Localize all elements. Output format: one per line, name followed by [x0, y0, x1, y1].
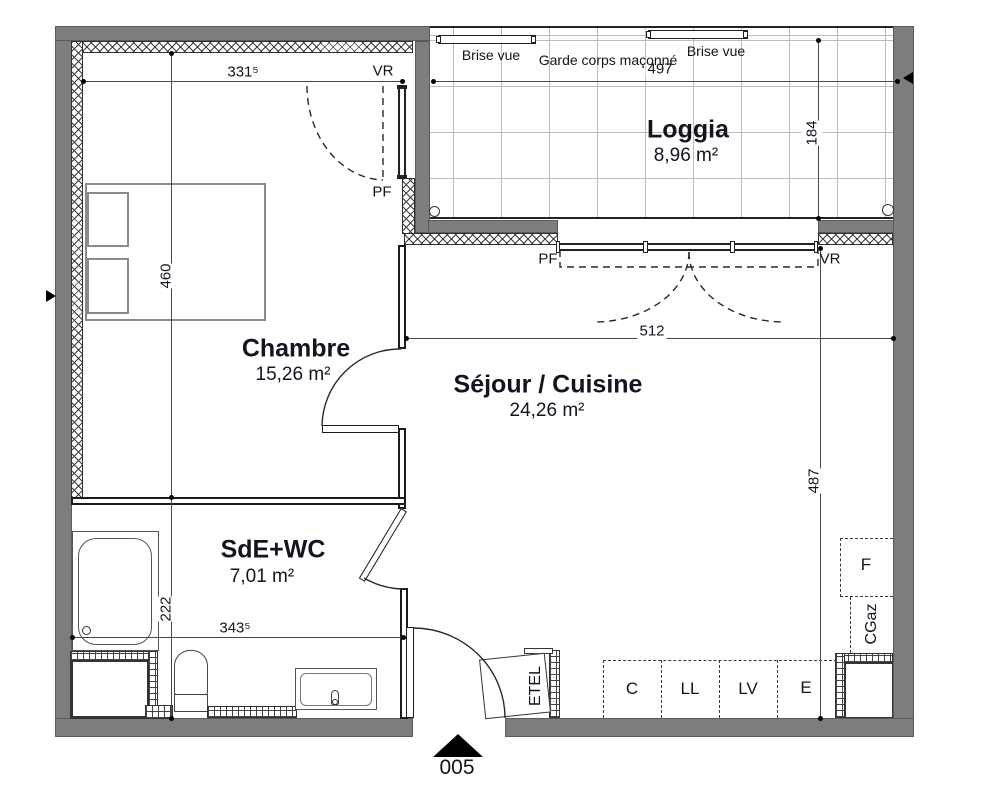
loggia-drain-left	[429, 206, 440, 217]
toilet-tank	[174, 694, 208, 712]
dim-chambre-width: 331⁵	[225, 64, 260, 81]
dim-sde-width: 343⁵	[217, 620, 252, 637]
label-brise-vue-right: Brise vue	[687, 43, 745, 59]
room-area-sde: 7,01 m²	[230, 566, 294, 588]
vanity-faucet-dot	[332, 699, 338, 705]
toilet-bowl	[174, 650, 208, 696]
appliance-label-c: C	[626, 679, 638, 699]
pf-window-chambre-cap-bottom	[397, 175, 407, 179]
insulation-sejour-top-left	[404, 233, 558, 245]
room-area-loggia: 8,96 m²	[654, 145, 718, 167]
brise-vue-panel-left-cap2	[531, 36, 536, 43]
insulation-left-wall	[71, 41, 83, 498]
pf-window-chambre	[398, 88, 406, 176]
label-pf-sejour: PF	[538, 251, 557, 268]
partition-chambre-sejour-upper	[398, 245, 406, 349]
room-area-chambre: 15,26 m²	[256, 364, 331, 386]
bay-window-mullion-1	[643, 241, 648, 253]
room-name-loggia: Loggia	[647, 116, 729, 145]
bottom-wall-left	[55, 718, 413, 737]
brise-vue-panel-right-cap1	[646, 31, 651, 38]
room-area-sejour: 24,26 m²	[510, 400, 585, 422]
duct-inner	[845, 663, 893, 718]
insulation-loggia-pier	[402, 178, 415, 234]
dim-loggia-height: 184	[802, 120, 823, 145]
entrance-marker-icon	[433, 734, 483, 757]
duct-tile-left	[835, 653, 845, 718]
appliance-row-top	[603, 660, 837, 661]
gas-label: CGaz	[863, 604, 881, 645]
dim-line-loggia-width	[433, 81, 897, 82]
room-name-chambre: Chambre	[242, 335, 350, 364]
label-brise-vue-left: Brise vue	[462, 47, 520, 63]
bay-window-swing-right	[689, 252, 784, 322]
sejour-top-wall-right	[818, 220, 894, 233]
label-vr-sejour: VR	[820, 251, 841, 268]
etel-label: ETEL	[527, 666, 545, 706]
label-vr-chambre: VR	[373, 63, 394, 80]
door-swing-sde	[364, 578, 404, 589]
appliance-label-e: E	[800, 678, 811, 698]
pf-window-chambre-cap-top	[397, 85, 407, 89]
partition-chambre-sde	[71, 497, 406, 505]
floor-plan: ETEL C LL LV E F CGaz 331⁵	[0, 0, 998, 800]
loggia-bottom-edge	[430, 217, 893, 219]
bay-window-swing-left	[594, 252, 689, 322]
appliance-label-lv: LV	[738, 679, 758, 699]
pillow-bottom	[87, 258, 129, 314]
brise-vue-panel-left	[438, 35, 536, 44]
label-pf-chambre: PF	[372, 184, 391, 201]
dim-chambre-height: 460	[156, 263, 177, 288]
brise-vue-panel-right-cap2	[743, 31, 748, 38]
bay-window	[558, 243, 818, 251]
tile-ledge-right	[207, 706, 297, 718]
brise-vue-panel-left-cap1	[436, 36, 441, 43]
pillow-top	[87, 192, 129, 247]
room-name-sejour: Séjour / Cuisine	[454, 371, 643, 400]
brise-vue-panel-right	[648, 30, 748, 39]
top-exterior-wall	[55, 26, 430, 41]
left-exterior-wall	[55, 26, 72, 737]
dim-sejour-width: 512	[637, 323, 666, 340]
bottom-wall-right	[505, 718, 914, 737]
loggia-drain-right	[882, 204, 894, 216]
appliance-sep-2	[661, 660, 662, 718]
shower-tray	[72, 661, 148, 717]
door-leaf-entry	[406, 627, 414, 718]
bay-window-shutter-box	[560, 250, 818, 267]
unit-number: 005	[439, 756, 474, 780]
etel-duct-strip	[549, 650, 560, 718]
appliance-label-ll: LL	[681, 679, 700, 699]
bathtub-drain	[82, 626, 91, 635]
dim-sejour-height: 487	[804, 468, 825, 493]
dim-line-sde-width	[72, 637, 404, 638]
appliance-sep-1	[603, 660, 604, 718]
door-leaf-sde	[359, 508, 407, 582]
insulation-sejour-top-right	[818, 233, 893, 245]
wall-arrow-right	[903, 72, 913, 84]
room-name-sde: SdE+WC	[221, 536, 326, 565]
door-leaf-chambre	[322, 425, 399, 433]
dim-line-chambre-width	[83, 81, 402, 82]
label-garde-corps: Garde corps maçonné	[539, 52, 678, 68]
window-swing-chambre	[307, 86, 383, 180]
loggia-top-edge	[430, 26, 893, 28]
shower-tile-top	[70, 651, 158, 661]
bay-window-mullion-2	[730, 241, 735, 253]
appliance-sep-4	[777, 660, 778, 718]
insulation-top-wall	[82, 41, 413, 53]
appliance-sep-3	[719, 660, 720, 718]
wall-arrow-left	[46, 290, 56, 302]
sejour-top-wall-left	[428, 220, 558, 233]
dim-sde-height: 222	[156, 596, 177, 621]
loggia-left-wall	[415, 41, 430, 233]
right-exterior-wall	[893, 26, 914, 737]
fridge-label: F	[861, 555, 871, 575]
